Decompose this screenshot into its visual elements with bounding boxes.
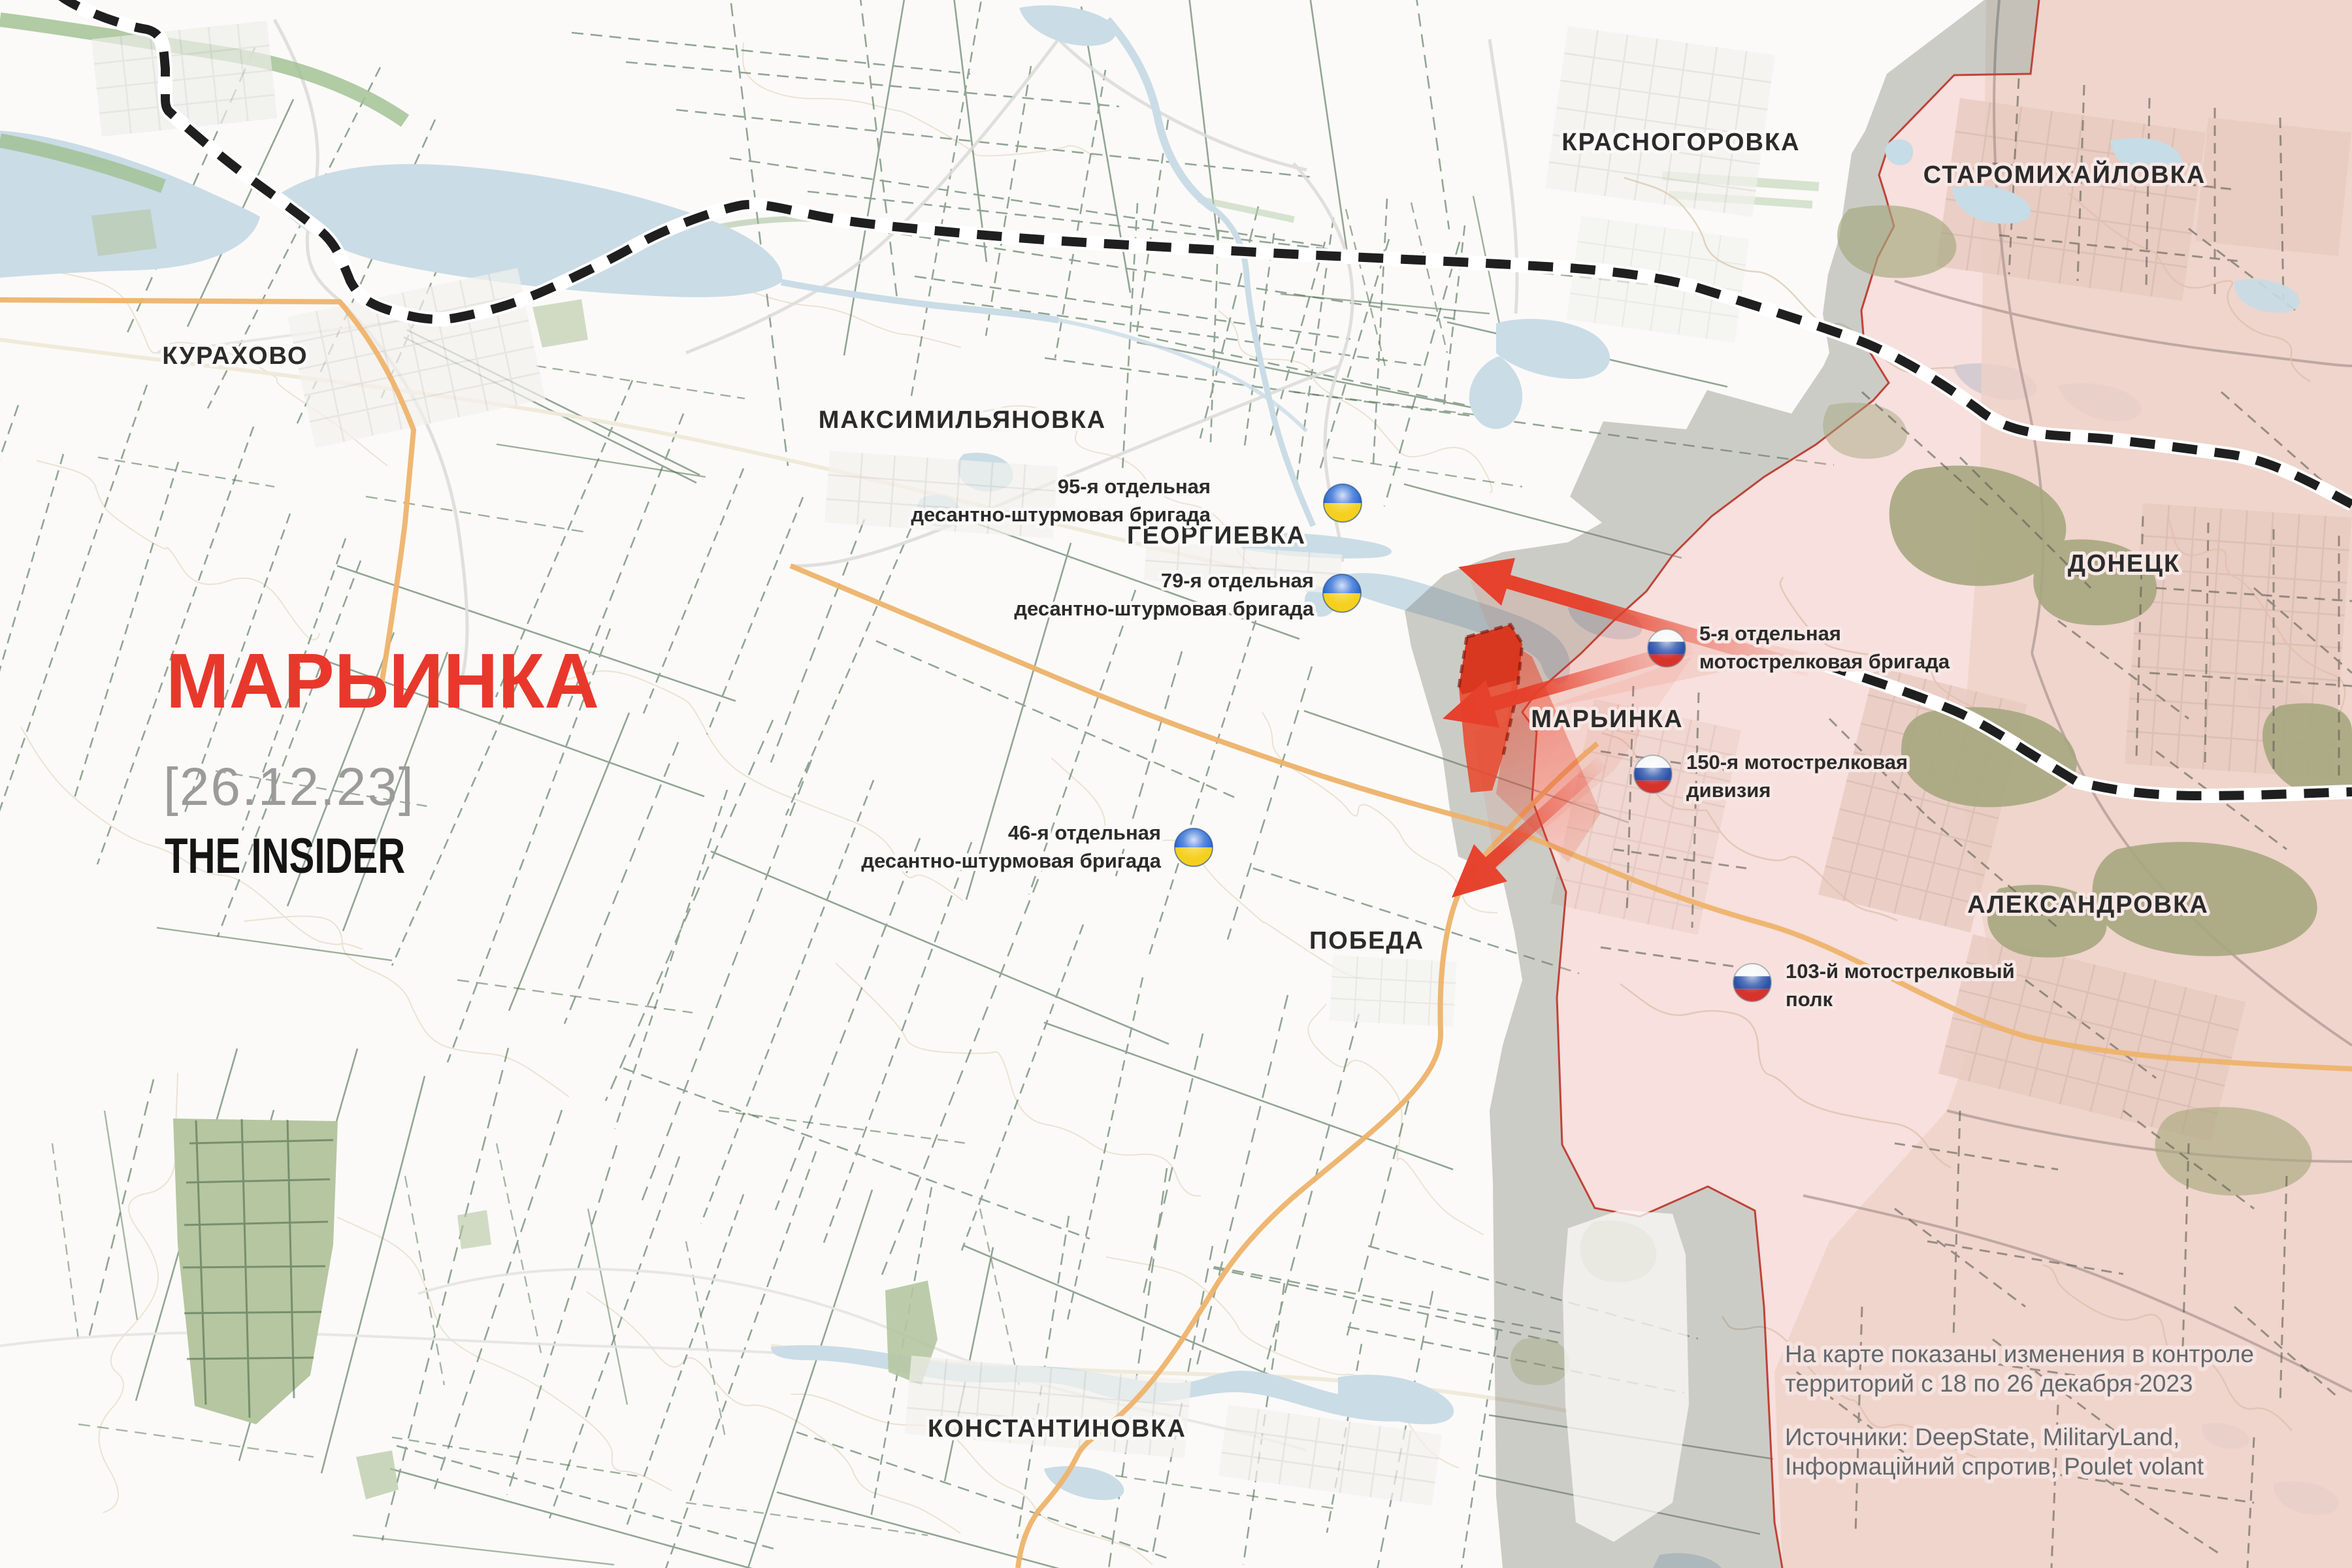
svg-text:150-я мотострелковая: 150-я мотострелковая	[1686, 751, 1908, 774]
svg-text:десантно-штурмовая бригада: десантно-штурмовая бригада	[1014, 597, 1314, 620]
svg-text:103-й мотострелковый: 103-й мотострелковый	[1786, 960, 2015, 983]
svg-text:МАРЬИНКА: МАРЬИНКА	[1531, 706, 1683, 733]
svg-text:46-я отдельная: 46-я отдельная	[1008, 821, 1161, 844]
svg-text:Источники: DeepState, Military: Источники: DeepState, MilitaryLand,	[1785, 1424, 2180, 1450]
svg-text:Інформаційний спротив, Poulet: Інформаційний спротив, Poulet volant	[1785, 1453, 2204, 1480]
svg-text:[26.12.23]: [26.12.23]	[163, 757, 415, 817]
svg-text:ГЕОРГИЕВКА: ГЕОРГИЕВКА	[1127, 522, 1306, 549]
svg-text:ПОБЕДА: ПОБЕДА	[1309, 927, 1424, 955]
svg-text:МАКСИМИЛЬЯНОВКА: МАКСИМИЛЬЯНОВКА	[819, 406, 1106, 434]
svg-text:МАРЬИНКА: МАРЬИНКА	[166, 638, 599, 725]
svg-text:полк: полк	[1786, 988, 1833, 1011]
svg-text:На карте показаны изменения в: На карте показаны изменения в контроле	[1785, 1341, 2254, 1367]
svg-text:95-я отдельная: 95-я отдельная	[1058, 475, 1211, 498]
svg-text:79-я отдельная: 79-я отдельная	[1161, 569, 1314, 592]
svg-text:десантно-штурмовая бригада: десантно-штурмовая бригада	[911, 503, 1211, 526]
svg-text:ДОНЕЦК: ДОНЕЦК	[2068, 550, 2180, 578]
svg-text:5-я отдельная: 5-я отдельная	[1699, 622, 1841, 645]
svg-text:территорий с 18 по 26 декабря: территорий с 18 по 26 декабря 2023	[1785, 1370, 2193, 1397]
svg-text:СТАРОМИХАЙЛОВКА: СТАРОМИХАЙЛОВКА	[1923, 159, 2206, 189]
svg-text:мотострелковая бригада: мотострелковая бригада	[1699, 650, 1950, 673]
svg-text:десантно-штурмовая бригада: десантно-штурмовая бригада	[861, 849, 1161, 872]
svg-text:КРАСНОГОРОВКА: КРАСНОГОРОВКА	[1561, 129, 1800, 156]
svg-text:дивизия: дивизия	[1686, 779, 1771, 802]
svg-text:THE INSIDER: THE INSIDER	[165, 829, 405, 884]
svg-text:КОНСТАНТИНОВКА: КОНСТАНТИНОВКА	[928, 1415, 1186, 1443]
svg-text:КУРАХОВО: КУРАХОВО	[162, 342, 308, 370]
svg-text:АЛЕКСАНДРОВКА: АЛЕКСАНДРОВКА	[1967, 891, 2209, 919]
